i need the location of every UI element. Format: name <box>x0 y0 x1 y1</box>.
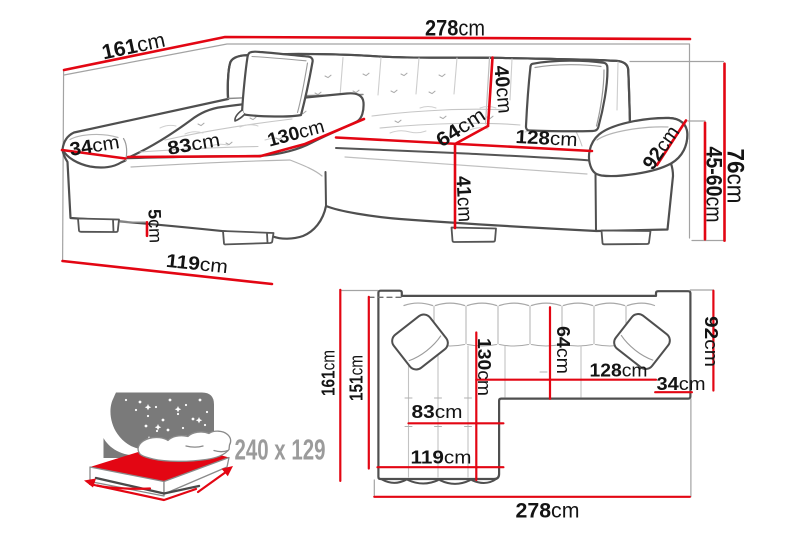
svg-text:161cm: 161cm <box>319 350 339 396</box>
svg-text:278cm: 278cm <box>425 15 485 40</box>
svg-text:128cm: 128cm <box>515 126 578 150</box>
svg-text:83cm: 83cm <box>412 402 463 422</box>
svg-text:130cm: 130cm <box>474 338 494 396</box>
svg-text:240 x 129: 240 x 129 <box>235 435 326 467</box>
svg-text:41cm: 41cm <box>451 175 475 222</box>
svg-text:128cm: 128cm <box>590 361 648 381</box>
svg-text:34cm: 34cm <box>657 374 706 394</box>
svg-text:161cm: 161cm <box>100 28 167 64</box>
svg-text:92cm: 92cm <box>701 316 721 367</box>
svg-text:5cm: 5cm <box>144 209 165 244</box>
svg-text:40cm: 40cm <box>489 65 515 115</box>
svg-text:278cm: 278cm <box>516 499 580 522</box>
svg-text:151cm: 151cm <box>347 355 367 401</box>
svg-text:119cm: 119cm <box>411 448 472 468</box>
svg-text:76cm: 76cm <box>722 149 749 204</box>
svg-text:64cm: 64cm <box>553 326 573 374</box>
